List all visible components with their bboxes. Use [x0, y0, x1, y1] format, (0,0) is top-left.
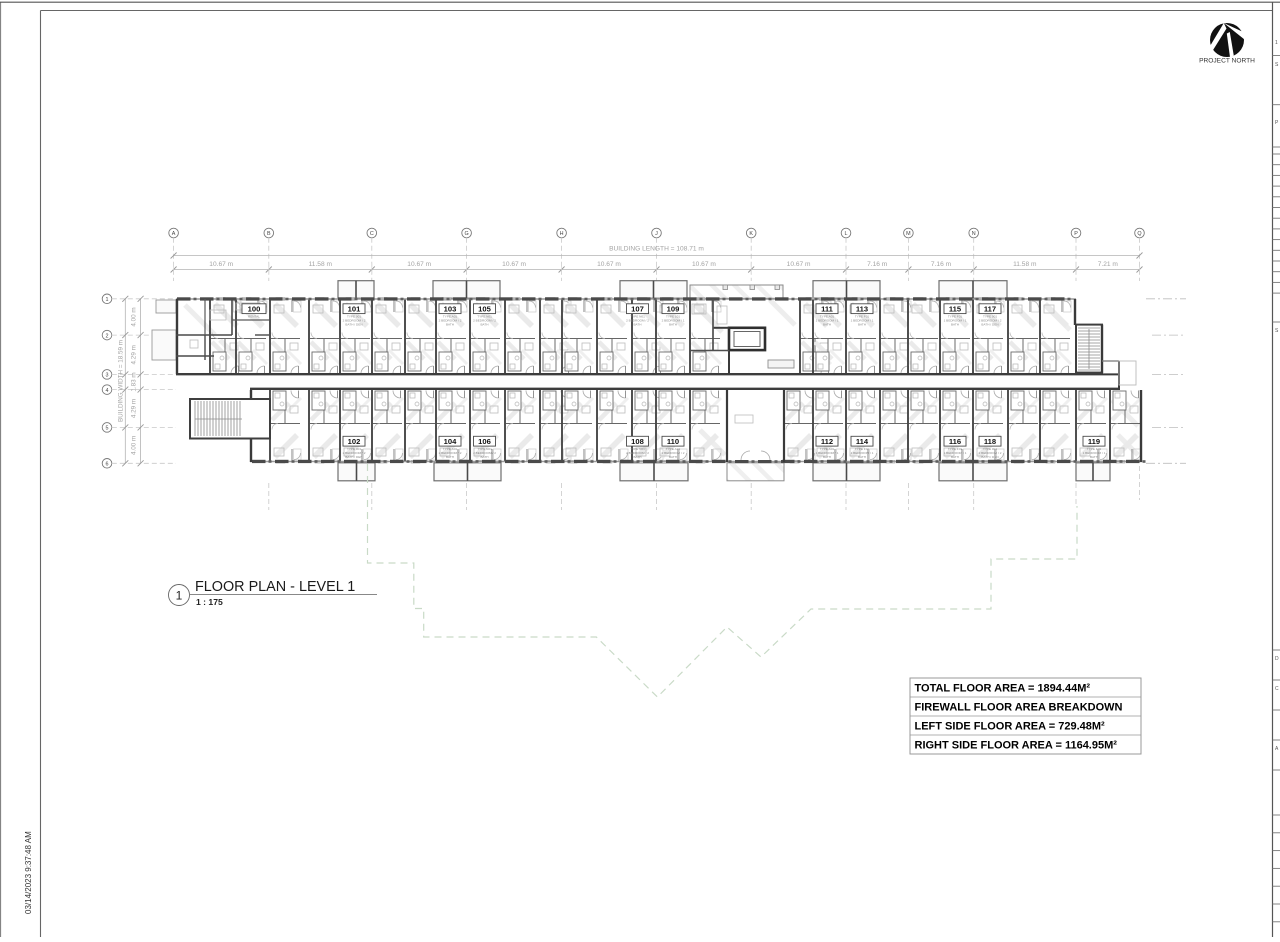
svg-text:1: 1: [106, 297, 109, 303]
svg-text:D: D: [1275, 656, 1279, 662]
svg-text:BATH / DEN: BATH / DEN: [981, 455, 998, 459]
svg-text:110: 110: [667, 437, 679, 446]
svg-text:117: 117: [984, 304, 996, 313]
svg-text:BATH: BATH: [633, 455, 641, 459]
svg-text:BATH: BATH: [446, 455, 454, 459]
svg-text:106: 106: [478, 437, 491, 446]
svg-text:102: 102: [348, 437, 361, 446]
svg-text:N: N: [972, 231, 976, 237]
svg-text:FLOOR PLAN - LEVEL 1: FLOOR PLAN - LEVEL 1: [195, 579, 355, 595]
svg-text:03/14/2023 9:37:48 AM: 03/14/2023 9:37:48 AM: [24, 831, 33, 914]
svg-text:100: 100: [248, 304, 261, 313]
svg-text:H: H: [560, 231, 564, 237]
svg-text:10.67 m: 10.67 m: [787, 261, 811, 268]
svg-text:109: 109: [667, 304, 680, 313]
svg-text:114: 114: [856, 437, 869, 446]
svg-text:BATH: BATH: [669, 455, 677, 459]
svg-text:4.29 m: 4.29 m: [131, 399, 138, 418]
svg-text:10.67 m: 10.67 m: [597, 261, 621, 268]
svg-text:4: 4: [106, 388, 109, 394]
svg-text:LEFT SIDE FLOOR AREA = 729.48M: LEFT SIDE FLOOR AREA = 729.48M²: [915, 721, 1106, 733]
svg-text:111: 111: [821, 304, 834, 313]
svg-text:10.67 m: 10.67 m: [209, 261, 233, 268]
svg-text:7.16 m: 7.16 m: [867, 261, 888, 268]
svg-text:BATH: BATH: [858, 322, 866, 326]
svg-text:5: 5: [106, 426, 109, 432]
svg-text:BATH: BATH: [669, 322, 677, 326]
svg-text:116: 116: [949, 437, 961, 446]
svg-text:RENTAL: RENTAL: [248, 314, 260, 318]
svg-text:BATH: BATH: [480, 322, 488, 326]
svg-text:J: J: [655, 231, 658, 237]
svg-text:BATH: BATH: [951, 322, 959, 326]
svg-text:1: 1: [176, 589, 183, 603]
svg-text:BATH / DEN: BATH / DEN: [345, 455, 362, 459]
svg-text:TOTAL FLOOR AREA = 1894.44M²: TOTAL FLOOR AREA = 1894.44M²: [915, 683, 1091, 695]
svg-text:FIREWALL FLOOR AREA BREAKDOWN: FIREWALL FLOOR AREA BREAKDOWN: [915, 702, 1123, 714]
svg-text:7.21 m: 7.21 m: [1098, 261, 1119, 268]
svg-text:10.67 m: 10.67 m: [502, 261, 526, 268]
svg-text:C: C: [1275, 686, 1279, 692]
svg-text:B: B: [267, 231, 271, 237]
svg-text:Q: Q: [1137, 231, 1141, 237]
svg-text:BATH: BATH: [823, 455, 831, 459]
svg-text:BATH: BATH: [858, 455, 866, 459]
svg-text:2: 2: [106, 333, 109, 339]
svg-text:C: C: [370, 231, 374, 237]
svg-text:BATH: BATH: [823, 322, 831, 326]
svg-text:BATH / DEN: BATH / DEN: [345, 322, 362, 326]
svg-text:105: 105: [478, 304, 491, 313]
svg-text:7.16 m: 7.16 m: [931, 261, 952, 268]
svg-text:1 : 175: 1 : 175: [196, 597, 223, 607]
svg-text:112: 112: [821, 437, 833, 446]
svg-text:A: A: [172, 231, 176, 237]
svg-text:BATH: BATH: [951, 455, 959, 459]
svg-text:11.58 m: 11.58 m: [1013, 261, 1037, 268]
svg-text:108: 108: [631, 437, 644, 446]
svg-text:BATH: BATH: [446, 322, 454, 326]
svg-text:4.00 m: 4.00 m: [131, 307, 138, 326]
svg-text:118: 118: [984, 437, 996, 446]
svg-text:M: M: [906, 231, 911, 237]
svg-text:L: L: [845, 231, 848, 237]
svg-text:G: G: [464, 231, 468, 237]
svg-text:BUILDING LENGTH = 108.71 m: BUILDING LENGTH = 108.71 m: [609, 246, 704, 253]
svg-text:BATH: BATH: [1090, 455, 1098, 459]
svg-text:10.67 m: 10.67 m: [692, 261, 716, 268]
svg-text:4.29 m: 4.29 m: [131, 345, 138, 364]
svg-text:P: P: [1074, 231, 1078, 237]
svg-text:11.58 m: 11.58 m: [309, 261, 333, 268]
svg-text:1.83 m: 1.83 m: [131, 372, 138, 391]
svg-text:BATH: BATH: [480, 455, 488, 459]
svg-text:4.00 m: 4.00 m: [131, 436, 138, 455]
svg-text:115: 115: [949, 304, 962, 313]
svg-text:113: 113: [856, 304, 868, 313]
svg-text:104: 104: [444, 437, 457, 446]
svg-text:PROJECT NORTH: PROJECT NORTH: [1199, 58, 1255, 65]
svg-text:107: 107: [631, 304, 644, 313]
svg-text:RIGHT SIDE FLOOR AREA = 1164.9: RIGHT SIDE FLOOR AREA = 1164.95M²: [915, 740, 1118, 752]
svg-text:6: 6: [106, 462, 109, 468]
svg-text:K: K: [749, 231, 753, 237]
svg-text:119: 119: [1088, 437, 1100, 446]
svg-text:BUILDING WIDTH = 18.59 m: BUILDING WIDTH = 18.59 m: [118, 340, 125, 422]
svg-text:1: 1: [1275, 40, 1278, 46]
svg-text:BATH: BATH: [633, 322, 641, 326]
svg-text:3: 3: [106, 373, 109, 379]
svg-text:BATH / DEN: BATH / DEN: [981, 322, 998, 326]
svg-text:10.67 m: 10.67 m: [407, 261, 431, 268]
svg-text:101: 101: [348, 304, 361, 313]
svg-text:103: 103: [444, 304, 457, 313]
